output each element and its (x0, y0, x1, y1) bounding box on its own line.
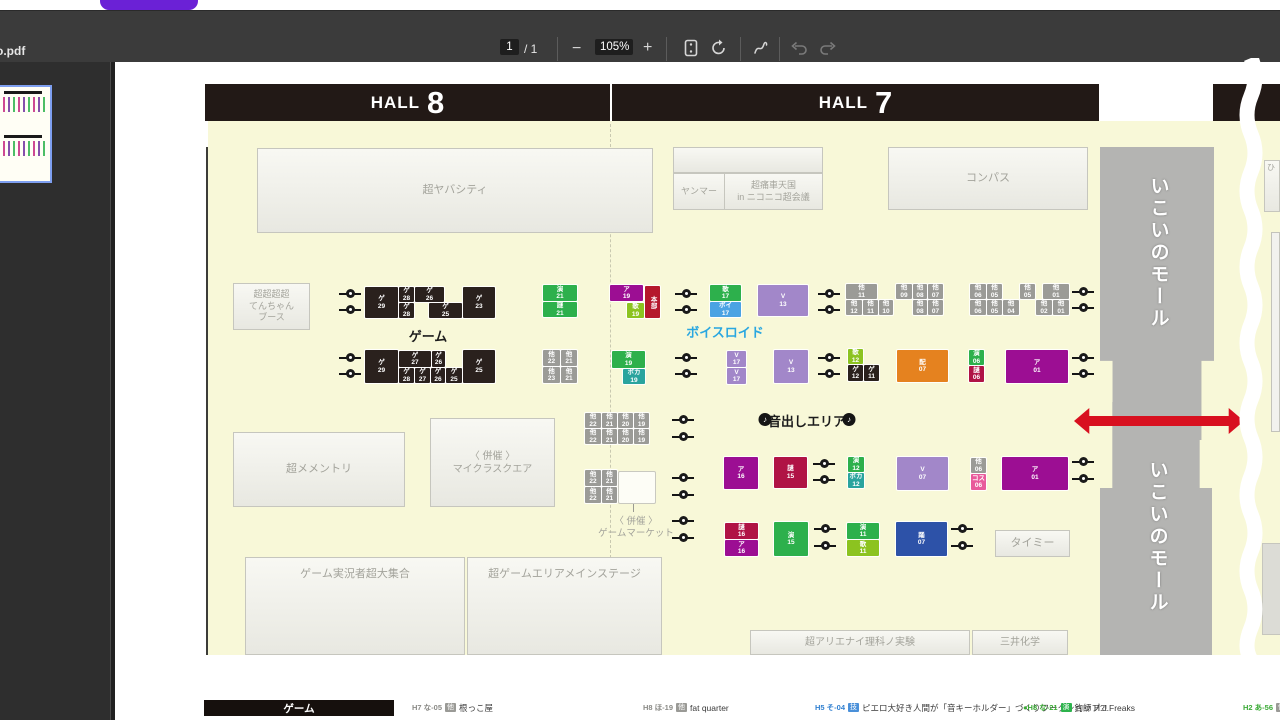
booth-block: 本部 (645, 286, 660, 318)
legend-entry: H2 あ-56他 (1243, 701, 1280, 714)
booth-block: 歌 17 (710, 285, 741, 301)
booth-block: 謎 15 (774, 457, 807, 488)
booth-block: ア 19 (610, 285, 643, 301)
pillar-icon (672, 489, 694, 500)
booth-block: 他 21 (602, 429, 617, 444)
pillar-icon (339, 304, 361, 315)
booth-block: 他 21 (602, 470, 617, 486)
legend-entry: H7 な-05他根っこ屋 (412, 701, 493, 714)
legend-code: H7 な-05 (412, 702, 442, 713)
booth-block: ボカ 12 (848, 473, 864, 488)
booth-block: ゲ 25 (463, 350, 495, 383)
pillar-icon (672, 431, 694, 442)
booth-block: 他 19 (634, 413, 649, 428)
booth-block: 演 19 (612, 351, 645, 368)
booth-block: 他 10 (879, 300, 893, 315)
booth-block: 他 20 (618, 413, 633, 428)
booth-block: 謎 06 (969, 366, 984, 382)
booth-block: ゲ 28 (399, 287, 414, 302)
booth-block: 他 05 (987, 300, 1002, 315)
pillar-icon (672, 515, 694, 526)
booth-block: 他 04 (1003, 300, 1019, 315)
booth-block: V 13 (774, 350, 808, 383)
booth-block: V 17 (727, 351, 746, 367)
booth-block: 他 21 (561, 350, 577, 366)
area-box: ゲーム実況者超大集合 (245, 557, 465, 655)
booth-block: 他 08 (913, 300, 927, 315)
pillar-icon (818, 368, 840, 379)
booth-block: ゲ 25 (446, 368, 462, 383)
pdf-viewer-window: o.pdf 1 / 1 − 105% + (0, 0, 1280, 720)
thumb-map-detail (3, 97, 45, 112)
booth-block: 歌 12 (848, 349, 863, 364)
booth-block: 他 21 (602, 413, 617, 428)
legend-code: H5 そ-04 (815, 702, 845, 713)
booth-block: 他 22 (543, 350, 560, 366)
booth-block: ゲ 29 (365, 287, 398, 318)
booth-block: ボイ 17 (710, 302, 741, 317)
booth-block: 他 22 (585, 470, 601, 486)
map-label: いこいのモール (1145, 176, 1172, 330)
booth-block: 他 09 (896, 284, 912, 299)
booth-block: ゲ 12 (848, 365, 863, 381)
map-label: 音出しエリア (768, 411, 846, 430)
booth-block: 他 19 (634, 429, 649, 444)
legend-category-bar: ゲーム (204, 700, 394, 716)
pillar-icon (814, 523, 836, 534)
pillar-icon (818, 352, 840, 363)
booth-block: 歌 19 (627, 303, 644, 318)
booth-block: ボカ 19 (623, 369, 645, 384)
area-box: 超痛車天国 in ニコニコ超会議 (724, 173, 823, 210)
pillar-icon (339, 368, 361, 379)
booth-block: ア 01 (1002, 457, 1068, 490)
pillar-icon (675, 352, 697, 363)
hall-header: HALL7 (612, 84, 1099, 121)
hall-word: HALL (371, 93, 420, 113)
booth-block: 他 06 (970, 300, 986, 315)
booth-block: 他 01 (1053, 300, 1069, 315)
pillar-icon (675, 288, 697, 299)
pillar-icon (339, 288, 361, 299)
booth-block: V 13 (758, 285, 808, 316)
booth-block: 他 05 (1020, 284, 1035, 299)
booth-block: 演 06 (969, 350, 984, 365)
legend-category-badge: 技 (848, 703, 859, 712)
hall-word: HALL (819, 93, 868, 113)
floor-map: HALL8HALL7超ヤバシティヤンマー超痛車天国 in ニコニコ超会議コンパス… (0, 0, 1280, 720)
booth-block: ゲ 26 (415, 287, 444, 302)
booth-block: ゲ 23 (463, 287, 495, 318)
hall-header: HALL8 (205, 84, 610, 121)
map-label: いこいのモール (1144, 460, 1171, 614)
area-box: 超ゲームエリアメインステージ (467, 557, 662, 655)
booth-block: 他 23 (543, 367, 560, 383)
legend-code: ●H8 な-21 (1023, 702, 1058, 713)
area-box: コンパス (888, 147, 1088, 210)
map-label: ゲームマーケット (598, 525, 674, 539)
pillar-icon (672, 414, 694, 425)
hall-number: 8 (427, 87, 444, 118)
booth-block: 他 20 (618, 429, 633, 444)
area-box: ヤンマー (673, 173, 725, 210)
area-box: 〈 併催 〉 マイクラスクエア (430, 418, 555, 507)
pillar-icon (1072, 352, 1094, 363)
pillar-icon (818, 304, 840, 315)
area-box: タイミー (995, 530, 1070, 557)
legend-exhibitor-name: 根っこ屋 (459, 702, 493, 714)
booth-block: V 17 (727, 368, 746, 384)
legend-code: H2 あ-56 (1243, 702, 1273, 713)
booth-block: 他 01 (1043, 284, 1069, 299)
thumb-hall-bar (4, 135, 42, 138)
sidebar-divider (111, 62, 115, 720)
booth-block: コス 06 (971, 474, 986, 490)
area-box (673, 147, 823, 173)
booth-block: ゲ 27 (399, 351, 431, 367)
pillar-icon (951, 540, 973, 551)
pillar-icon (675, 368, 697, 379)
partial-next-hall-box (1271, 232, 1280, 432)
pillar-icon (1072, 302, 1094, 313)
area-box: 超アリエナイ理科ノ実験 (750, 630, 970, 655)
legend-entry: ●H8 な-21演釣師 H.J.Freaks (1023, 701, 1135, 714)
pillar-icon (1072, 368, 1094, 379)
booth-block: 演 15 (774, 522, 808, 556)
booth-block: 他 07 (928, 300, 943, 315)
pillar-icon (814, 540, 836, 551)
booth-block: ゲ 28 (399, 303, 414, 318)
booth-block: 他 07 (928, 284, 943, 299)
booth-block: 他 12 (846, 300, 862, 315)
map-label: ♪ (843, 413, 856, 426)
legend-category-badge: 演 (1061, 703, 1072, 712)
pillar-icon (813, 458, 835, 469)
booth-block: ゲ 26 (431, 368, 445, 383)
map-label: ボイスロイド (686, 322, 764, 341)
pillar-icon (1072, 456, 1094, 467)
booth-block: 他 02 (1036, 300, 1052, 315)
booth-block: 謎 21 (543, 302, 577, 317)
booth-block: 他 22 (585, 487, 601, 503)
pillar-icon (675, 304, 697, 315)
area-box: ひ (1264, 160, 1280, 212)
booth-block: 踊 07 (896, 522, 947, 556)
booth-block: 他 22 (585, 413, 601, 428)
map-label: ゲーム (409, 326, 448, 345)
booth-block: 配 07 (897, 350, 948, 382)
booth-block: 演 12 (848, 457, 864, 472)
legend-exhibitor-name: fat quarter (690, 703, 729, 713)
booth-block: ゲ 25 (429, 303, 462, 318)
area-box: 三井化学 (972, 630, 1068, 655)
booth-block: 他 21 (561, 367, 577, 383)
booth-block: ゲ 28 (399, 368, 414, 383)
pillar-icon (951, 523, 973, 534)
legend-entry: H8 ほ-19他fat quarter (643, 701, 729, 714)
booth-block: 他 08 (913, 284, 927, 299)
booth-block: 他 06 (970, 284, 986, 299)
legend-category-badge: 他 (445, 703, 456, 712)
area-box: 超メメントリ (233, 432, 405, 507)
pillar-icon (339, 352, 361, 363)
thumb-hall-bar (4, 91, 42, 94)
pillar-icon (1072, 473, 1094, 484)
legend-category-badge: 他 (676, 703, 687, 712)
booth-block: 他 21 (602, 487, 617, 503)
partial-next-hall-gray-box (1262, 543, 1280, 635)
pillar-icon (1072, 286, 1094, 297)
pillar-icon (672, 532, 694, 543)
booth-block: ア 16 (725, 540, 758, 556)
thumb-map-detail (3, 141, 45, 156)
booth-block: 歌 11 (847, 540, 879, 556)
legend-code: H8 ほ-19 (643, 702, 673, 713)
pillar-icon (672, 472, 694, 483)
booth-block: ゲ 26 (432, 351, 445, 367)
booth-block: ゲ 27 (415, 368, 430, 383)
booth-block: ア 01 (1006, 350, 1068, 383)
booth-block: 他 05 (987, 284, 1002, 299)
booth-block: 演 11 (847, 523, 879, 539)
area-box: 超超超超 てんちゃん ブース (233, 283, 310, 330)
hall-left-wall (206, 147, 208, 655)
booth-block: 他 11 (846, 284, 877, 299)
pillar-icon (818, 288, 840, 299)
booth-block: 他 11 (863, 300, 878, 315)
booth-block: 他 22 (585, 429, 601, 444)
page-tear-wave (1238, 58, 1264, 660)
booth-block: ゲ 29 (365, 350, 398, 383)
hall-number: 7 (875, 87, 892, 118)
booth-block: ゲ 11 (864, 365, 879, 381)
thumbnail-sidebar (0, 62, 111, 720)
legend-exhibitor-name: 釣師 H.J.Freaks (1075, 702, 1135, 714)
booth-block: 演 21 (543, 285, 577, 301)
page-thumbnail[interactable] (0, 85, 52, 183)
booth-block: ア 16 (724, 457, 758, 489)
pillar-icon (813, 474, 835, 485)
booth-block (619, 472, 655, 503)
booth-block: 謎 16 (725, 523, 758, 539)
legend-category-badge: 他 (1276, 703, 1280, 712)
booth-block: V 07 (897, 457, 948, 490)
booth-block: 他 06 (971, 458, 986, 473)
area-box: 超ヤバシティ (257, 148, 653, 233)
